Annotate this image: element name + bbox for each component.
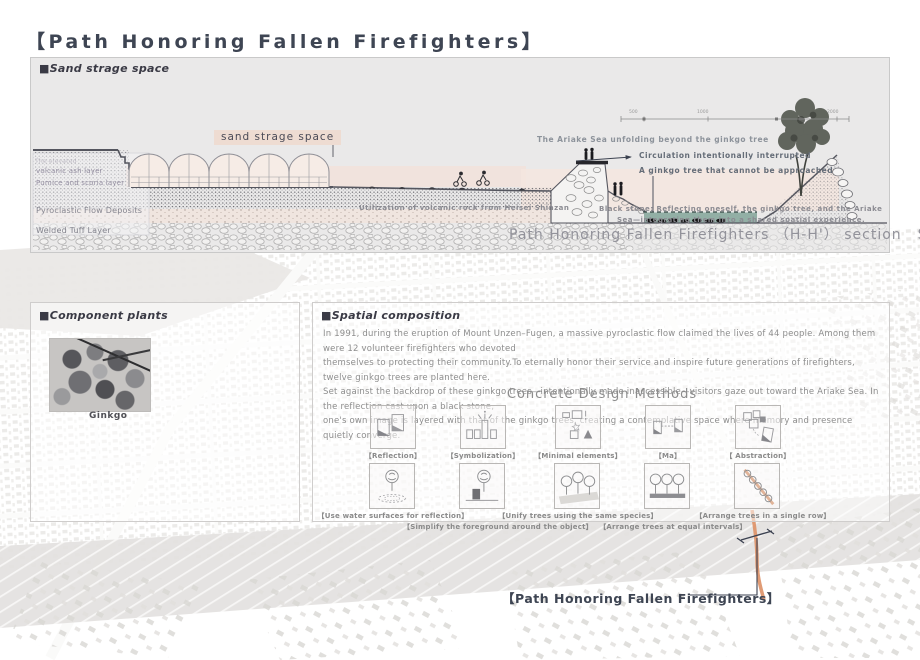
method-label-water-reflection: 【Use water surfaces for reflection】 [303,511,483,521]
geology-label-3: Pyroclastic Flow Deposits [36,206,142,215]
method-box-ma [645,405,691,449]
geology-label-2: Pumice and scoria layer [36,179,124,187]
geology-label-0: The elevated [35,158,77,165]
geology-label-1: volcanic ash layer [36,167,103,175]
symbolization-icon [461,406,505,448]
component-plants-panel: ■Component plants Ginkgo [30,302,300,522]
method-box-abstraction [735,405,781,449]
minimal-elements-icon [556,406,600,448]
page-title: 【Path Honoring Fallen Firefighters】 [26,27,544,54]
method-box-water-reflection [369,463,415,509]
scale-tick-1000: 1000 [697,110,708,115]
method-label-abstraction: 【 Abstraction】 [668,451,848,461]
annotation-ginkgo-tree: A ginkgo tree that cannot be approached [639,166,833,175]
simplify-foreground-icon [460,464,504,508]
method-box-minimal-elements [555,405,601,449]
ginkgo-caption: Ginkgo [89,411,128,421]
section-caption-text: Path Honoring Fallen Firefighters （H-H'）… [509,227,902,243]
sand-storage-label: sand strage space [214,130,341,145]
people-on-platform [584,148,593,160]
annotation-volcanic-rock: Utilization of volcanic rock from Heisei… [359,204,569,212]
component-plants-header: ■Component plants [39,309,168,322]
greenhouses [129,154,329,187]
method-label-simplify-foreground: 【Simplify the foreground around the obje… [403,522,583,532]
single-row-icon [735,464,779,508]
annotation-circulation: Circulation intentionally interrupted [639,151,811,160]
map-site-label: 【Path Honoring Fallen Firefighters】 [502,588,780,607]
water-reflection-icon [370,464,414,508]
method-label-equal-intervals: 【Arrange trees at equal intervals】 [583,522,763,532]
method-box-single-row [734,463,780,509]
abstraction-icon [736,406,780,448]
circulation-arrow [576,157,631,161]
ma-icon [646,406,690,448]
spatial-composition-panel: ■Spatial composition In 1991, during the… [312,302,890,522]
ginkgo-photo [49,338,151,412]
annotation-black-stone-2: Sea—integrating them into a shared spati… [617,216,865,224]
reflection-icon [371,406,415,448]
scale-tick-2000: 2000 [827,110,838,115]
method-label-single-row: 【Arrange trees in a single row】 [673,511,853,521]
concrete-design-methods-title: Concrete Design Methods [313,387,891,402]
annotation-ariake-unfolding: The Ariake Sea unfolding beyond the gink… [537,135,769,144]
method-box-symbolization [460,405,506,449]
section-caption: Path Honoring Fallen Firefighters （H-H'）… [509,224,920,244]
method-box-same-species [554,463,600,509]
geology-label-4: Welded Tuff Layer [36,226,111,235]
section-panel-header: ■Sand strage space [39,62,169,75]
method-label-same-species: 【Unify trees using the same species】 [488,511,668,521]
method-box-reflection [370,405,416,449]
section-panel: ■Sand strage space sand strage space The… [30,57,890,253]
equal-intervals-icon [645,464,689,508]
method-box-equal-intervals [644,463,690,509]
annotation-black-stone-1: Black stone: Reflecting oneself, the gin… [599,205,882,213]
presentation-board: ■Sand strage space sand strage space The… [0,0,920,660]
method-box-simplify-foreground [459,463,505,509]
scale-tick-500: 500 [629,110,638,115]
spatial-composition-header: ■Spatial composition [321,309,460,322]
same-species-icon [555,464,599,508]
